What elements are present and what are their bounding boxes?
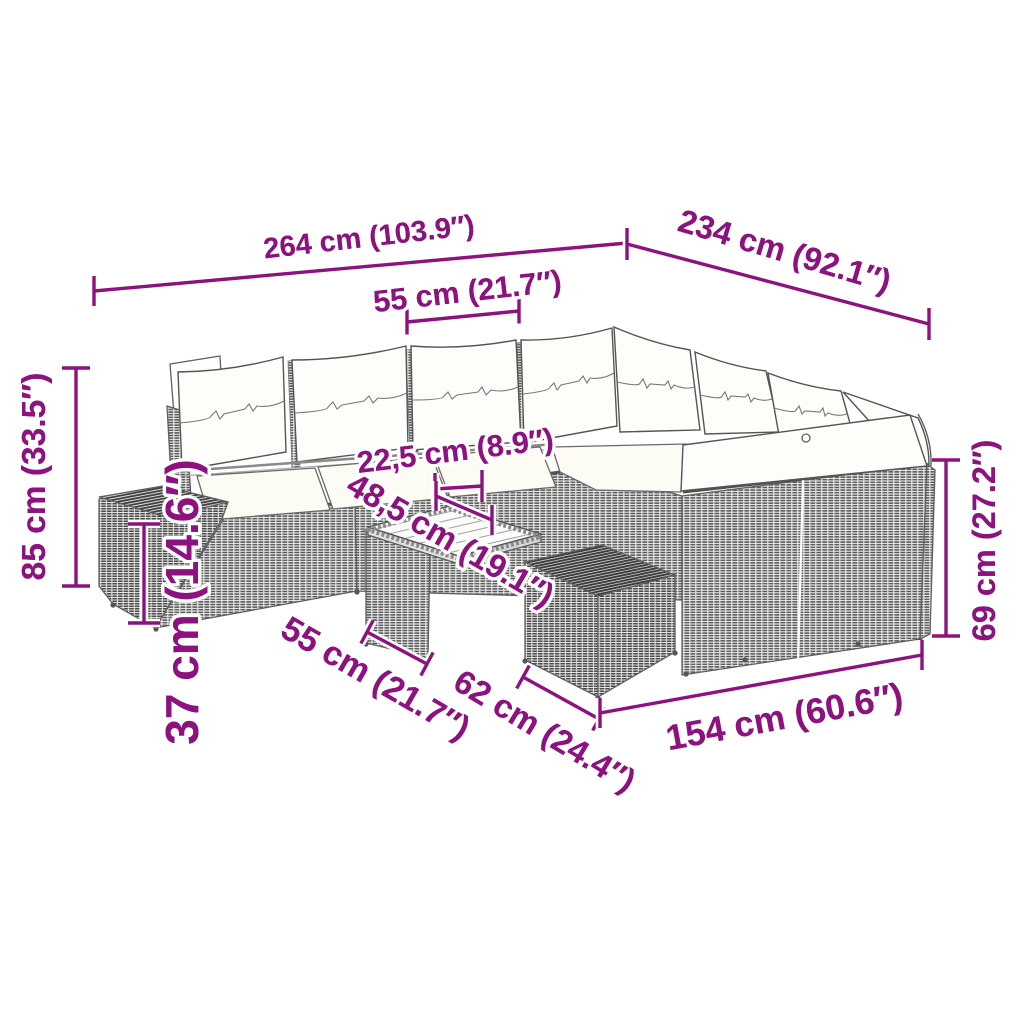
svg-text:85 cm (33.5″): 85 cm (33.5″) bbox=[16, 373, 53, 581]
svg-text:37 cm (14.6″): 37 cm (14.6″) bbox=[156, 459, 208, 744]
svg-text:69 cm (27.2″): 69 cm (27.2″) bbox=[966, 440, 1002, 642]
